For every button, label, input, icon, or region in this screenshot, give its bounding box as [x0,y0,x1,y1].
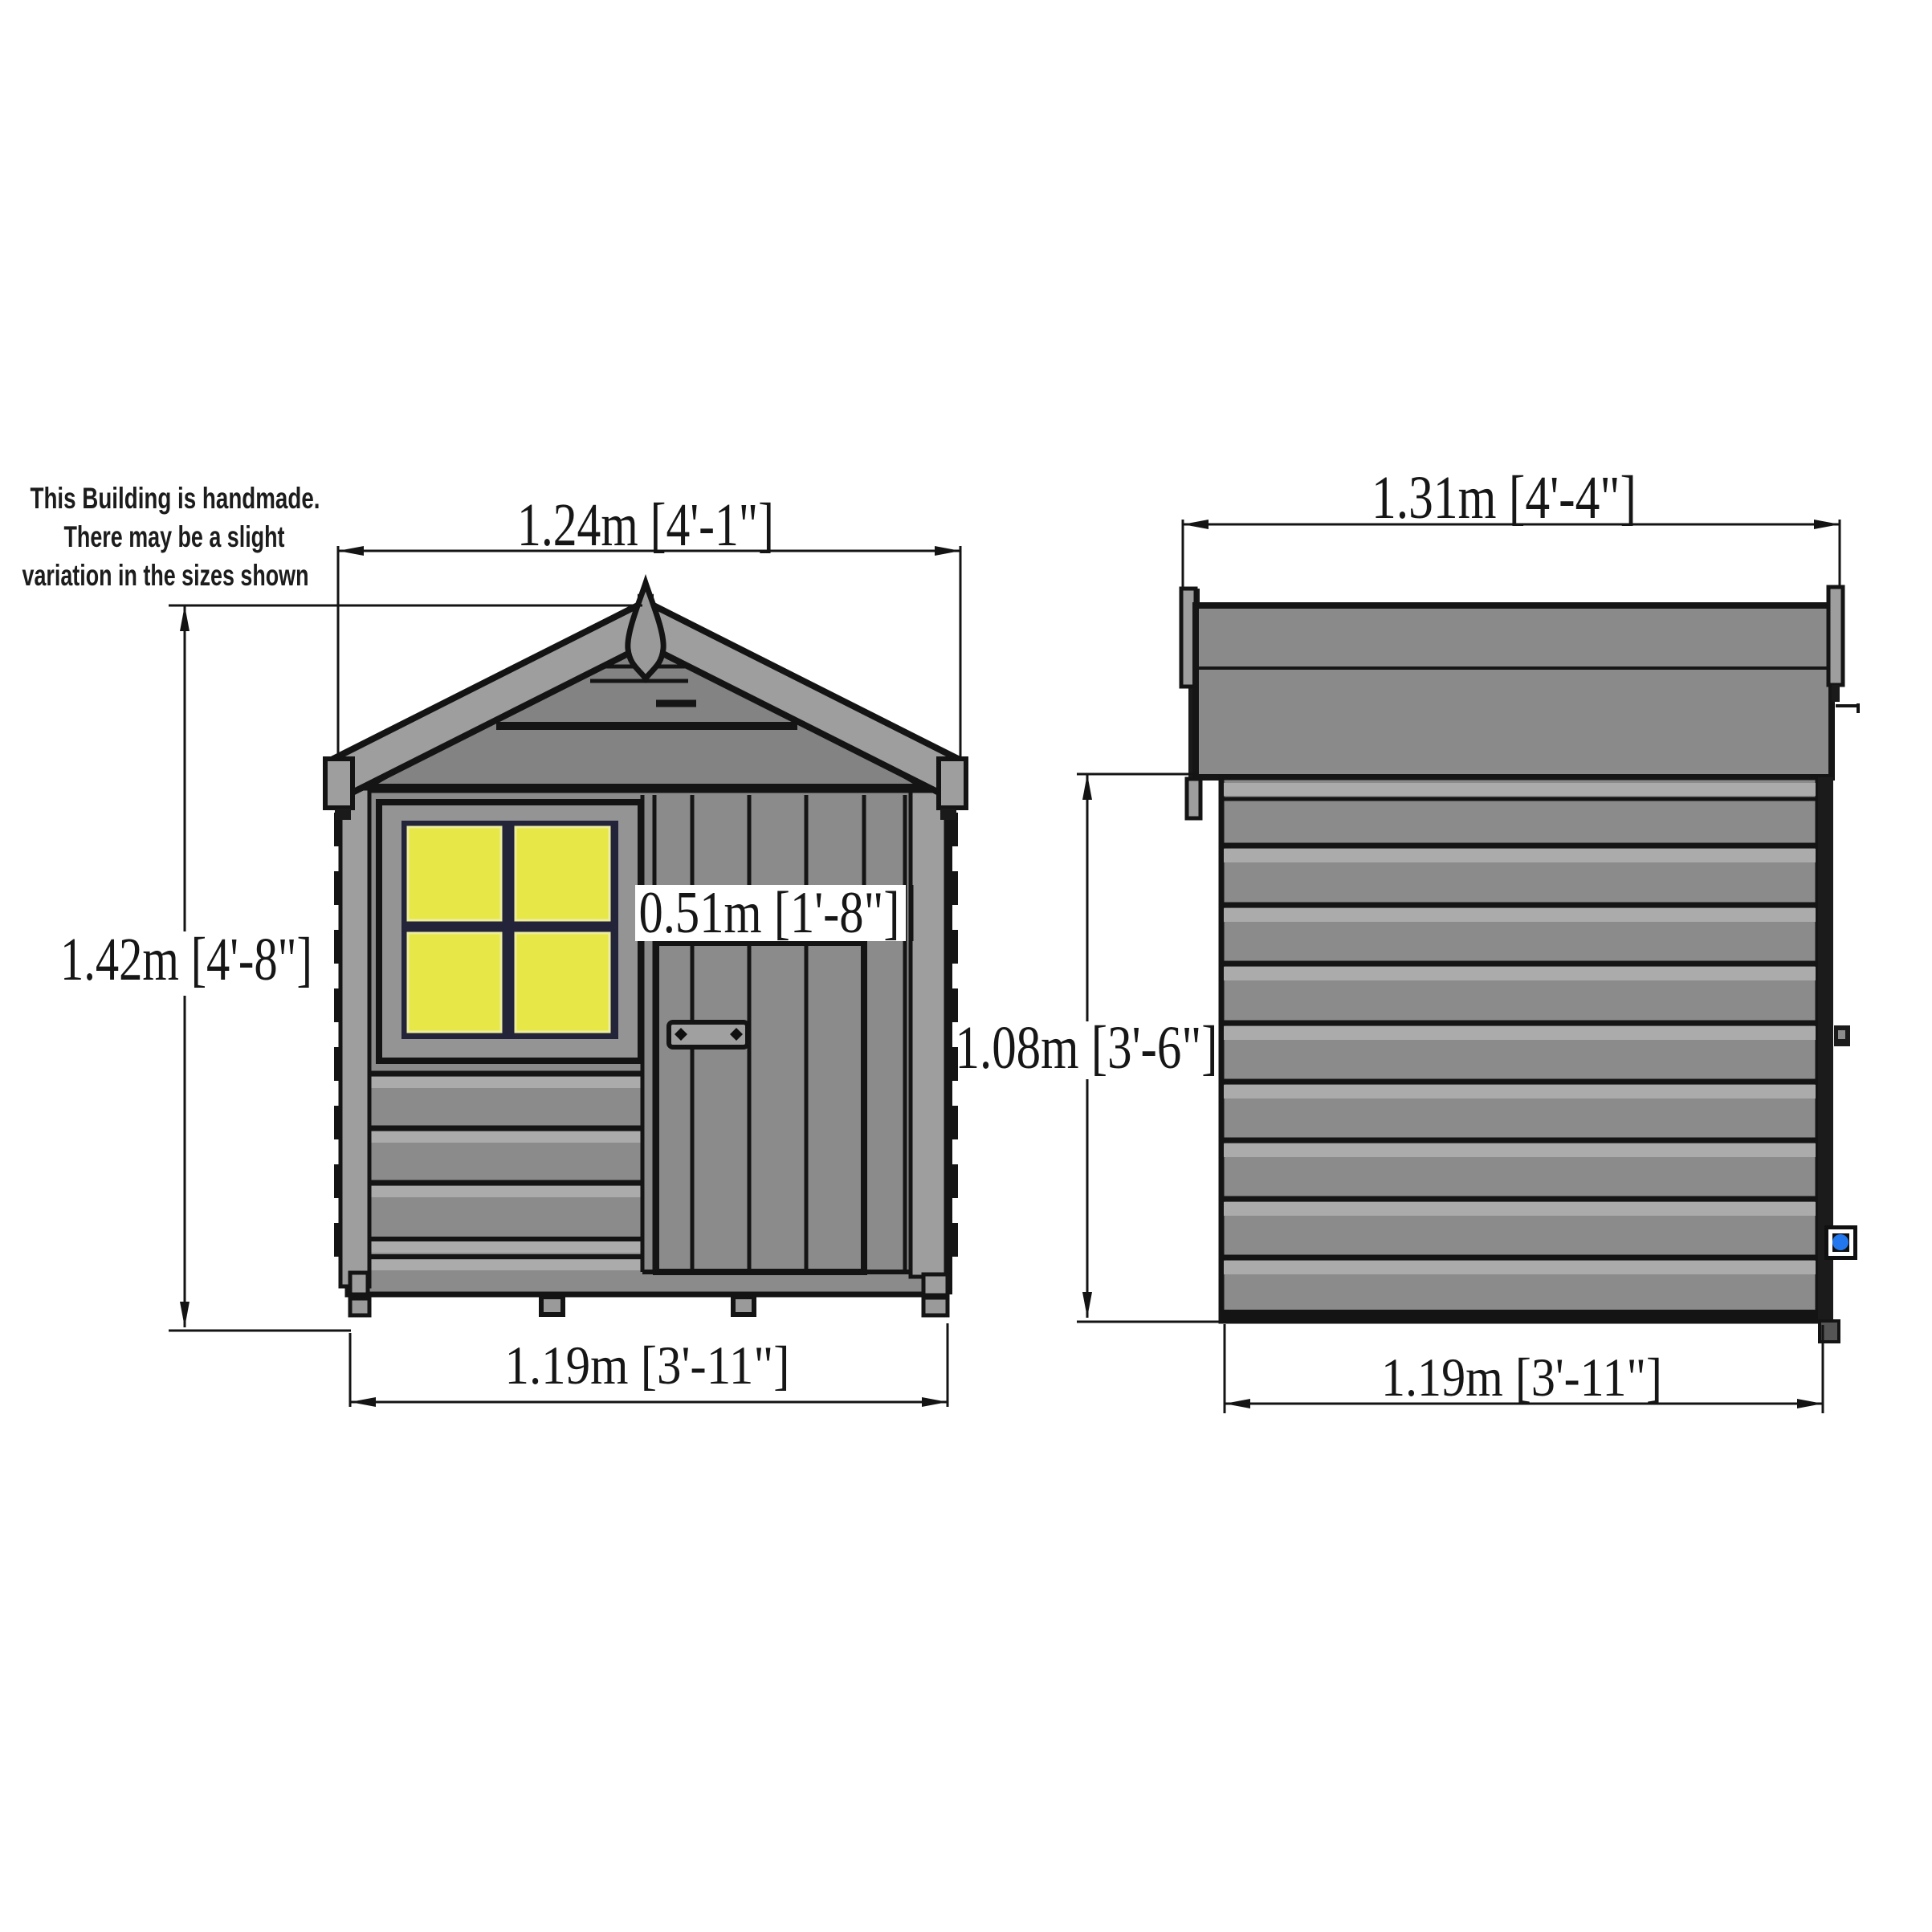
svg-text:0.51m [1'-8"]: 0.51m [1'-8"] [639,880,900,946]
svg-text:1.19m [3'-11"]: 1.19m [3'-11"] [505,1335,790,1396]
svg-text:There may be a slight: There may be a slight [64,520,285,553]
svg-text:1.42m [4'-8"]: 1.42m [4'-8"] [60,926,312,993]
svg-text:This Building is handmade.: This Building is handmade. [31,482,320,515]
svg-text:variation in the sizes shown: variation in the sizes shown [22,559,309,592]
svg-text:1.19m [3'-11"]: 1.19m [3'-11"] [1381,1347,1662,1408]
svg-text:1.24m [4'-1"]: 1.24m [4'-1"] [517,491,774,559]
svg-text:1.31m [4'-4"]: 1.31m [4'-4"] [1372,464,1636,532]
svg-text:1.08m [3'-6"]: 1.08m [3'-6"] [956,1014,1218,1082]
